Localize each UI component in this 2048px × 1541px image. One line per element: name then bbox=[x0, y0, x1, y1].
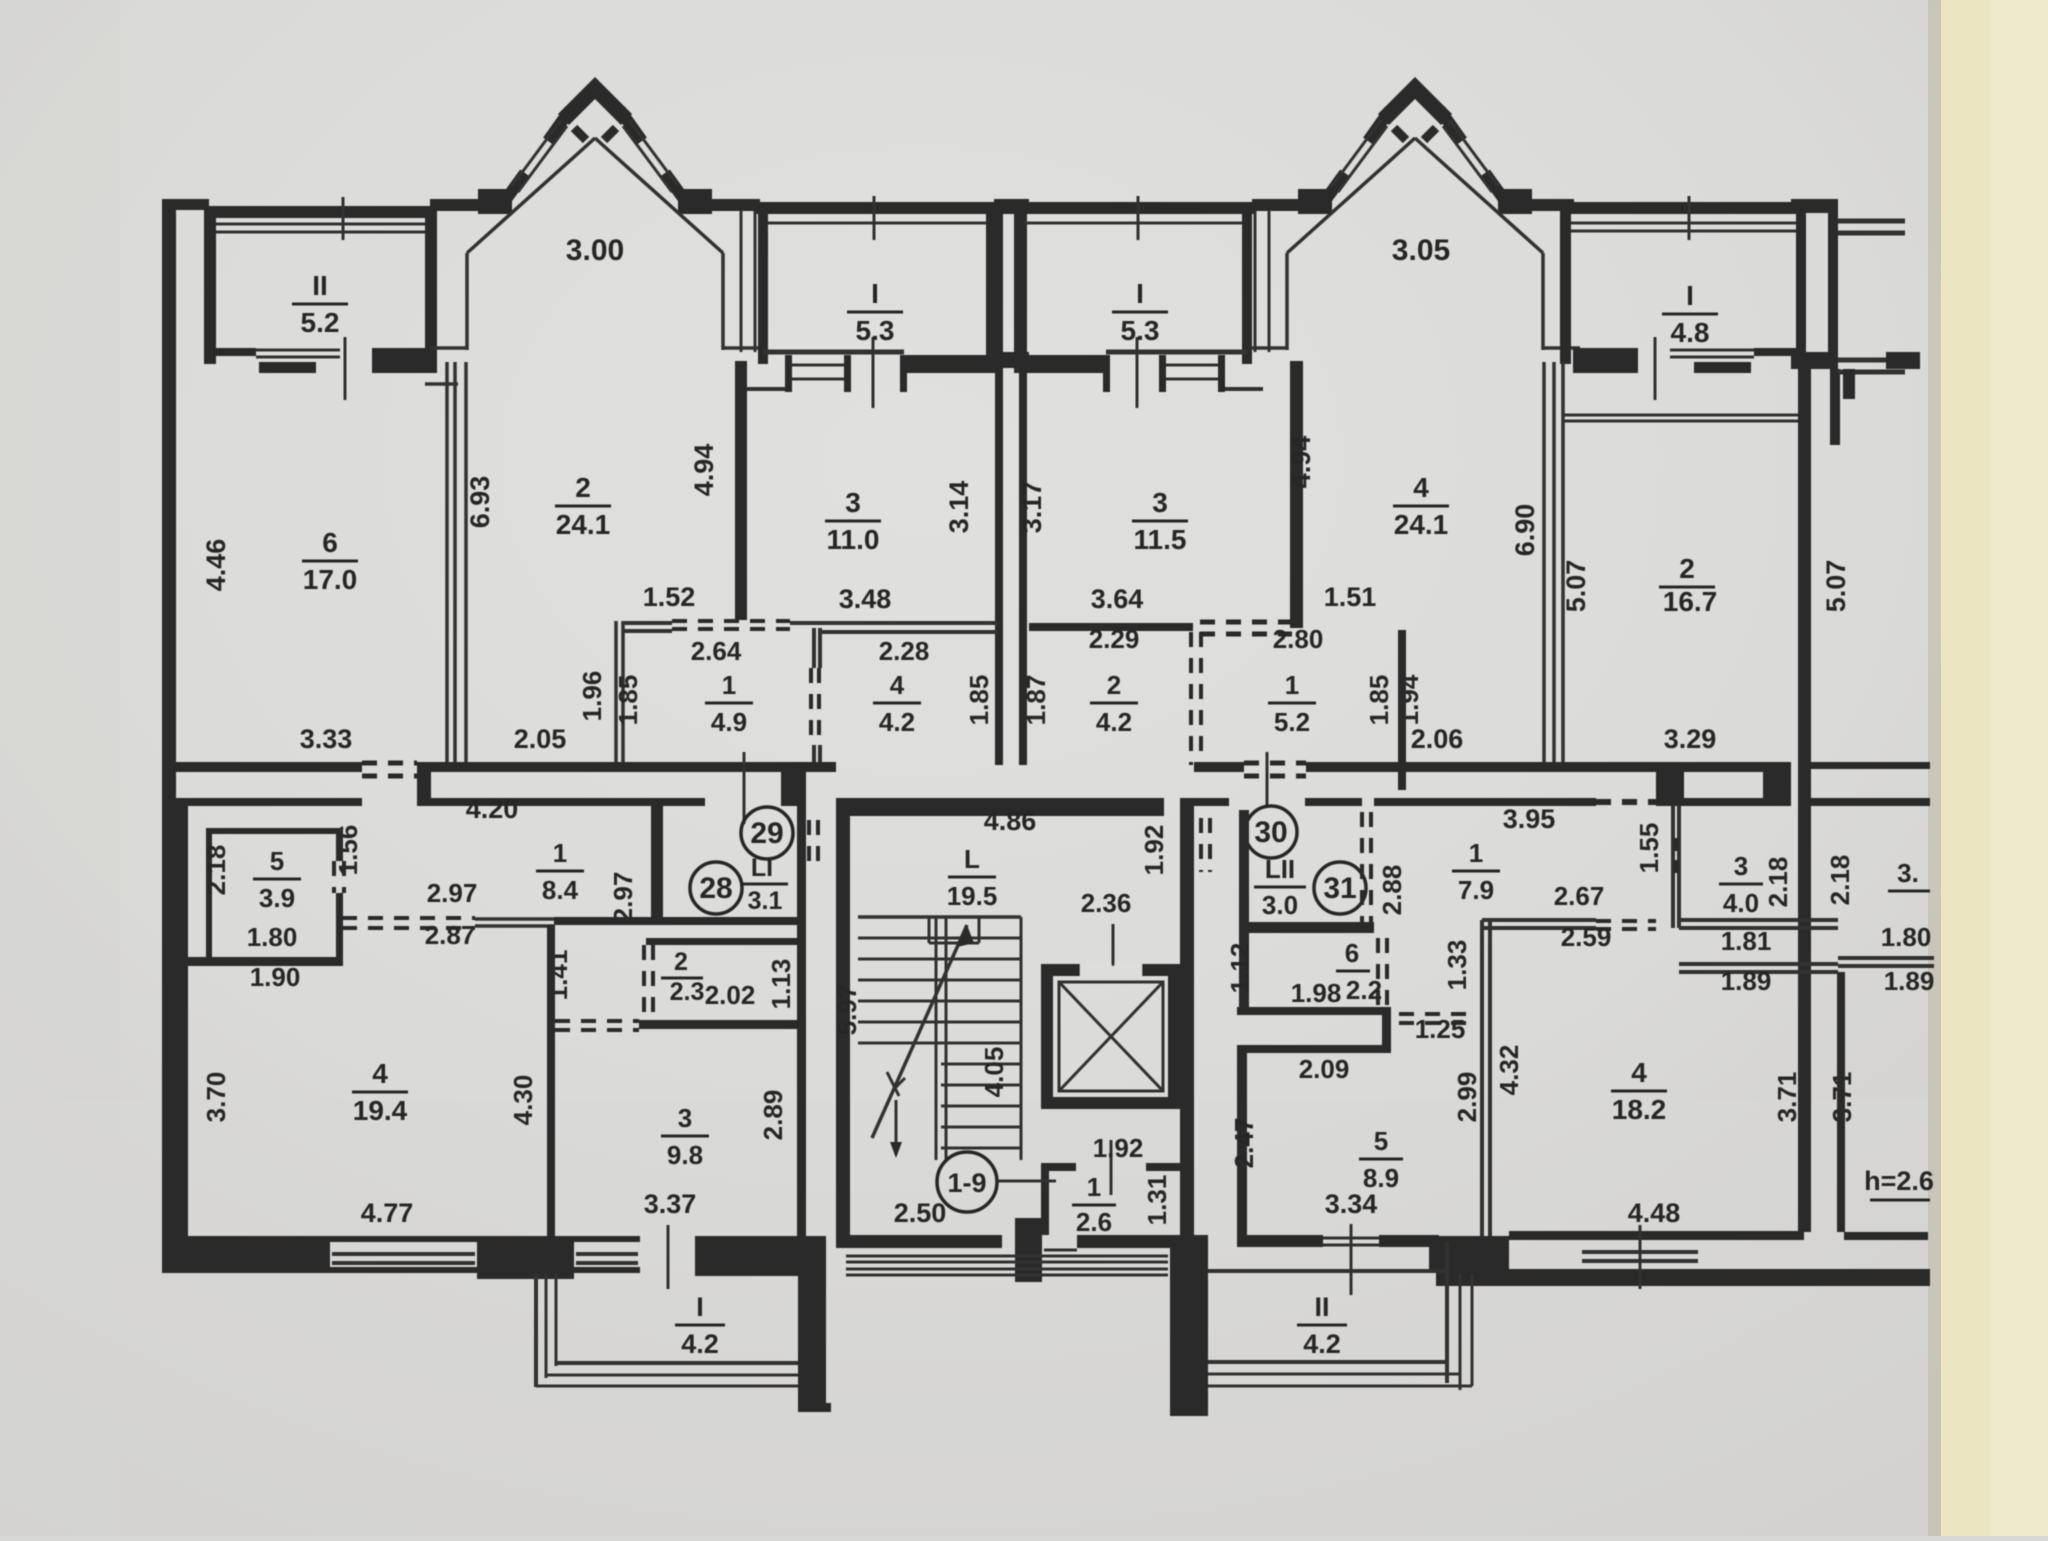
svg-text:h=2.6: h=2.6 bbox=[1864, 1166, 1934, 1196]
svg-text:4.32: 4.32 bbox=[1494, 1045, 1524, 1096]
svg-text:6: 6 bbox=[322, 527, 338, 558]
svg-text:1-9: 1-9 bbox=[947, 1168, 986, 1198]
svg-text:4.94: 4.94 bbox=[689, 444, 719, 497]
svg-text:3.0: 3.0 bbox=[1262, 890, 1298, 920]
svg-text:1: 1 bbox=[1087, 1172, 1101, 1202]
svg-text:7.9: 7.9 bbox=[1458, 875, 1494, 905]
svg-text:2.18: 2.18 bbox=[1825, 855, 1855, 906]
svg-text:5.2: 5.2 bbox=[1274, 707, 1310, 737]
svg-text:2.02: 2.02 bbox=[705, 980, 756, 1010]
svg-text:1: 1 bbox=[1285, 670, 1299, 700]
svg-text:3.05: 3.05 bbox=[1392, 234, 1450, 267]
svg-text:1.89: 1.89 bbox=[1884, 966, 1935, 996]
svg-text:4.46: 4.46 bbox=[201, 539, 231, 592]
svg-text:1.90: 1.90 bbox=[250, 962, 301, 992]
svg-text:4.48: 4.48 bbox=[1628, 1198, 1681, 1228]
svg-text:3: 3 bbox=[678, 1103, 692, 1133]
svg-text:1.80: 1.80 bbox=[1881, 922, 1932, 952]
svg-text:4.2: 4.2 bbox=[681, 1329, 719, 1359]
svg-text:2.18: 2.18 bbox=[201, 845, 231, 896]
svg-text:3: 3 bbox=[1734, 851, 1748, 881]
svg-text:1.81: 1.81 bbox=[1721, 926, 1772, 956]
svg-text:2: 2 bbox=[1107, 670, 1121, 700]
svg-text:1.55: 1.55 bbox=[1634, 823, 1664, 874]
svg-text:4: 4 bbox=[1413, 472, 1429, 503]
svg-text:1.80: 1.80 bbox=[247, 922, 298, 952]
svg-text:17.0: 17.0 bbox=[303, 564, 358, 595]
svg-text:24.1: 24.1 bbox=[556, 509, 611, 540]
svg-text:1.85: 1.85 bbox=[1364, 675, 1394, 726]
svg-text:2.2: 2.2 bbox=[1346, 975, 1382, 1005]
svg-text:3.70: 3.70 bbox=[201, 1072, 231, 1123]
svg-text:1.25: 1.25 bbox=[1415, 1014, 1466, 1044]
svg-text:11.5: 11.5 bbox=[1134, 524, 1187, 555]
svg-text:1.31: 1.31 bbox=[1142, 1175, 1172, 1226]
svg-text:1.98: 1.98 bbox=[1291, 978, 1342, 1008]
svg-text:1.33: 1.33 bbox=[1442, 940, 1472, 991]
svg-text:6.93: 6.93 bbox=[465, 476, 495, 529]
svg-text:5.2: 5.2 bbox=[301, 307, 340, 338]
svg-text:2.29: 2.29 bbox=[1089, 624, 1140, 654]
svg-text:1.96: 1.96 bbox=[577, 671, 607, 722]
svg-text:2.99: 2.99 bbox=[1452, 1072, 1482, 1123]
svg-text:5: 5 bbox=[270, 846, 284, 876]
svg-text:3.64: 3.64 bbox=[1091, 584, 1144, 614]
svg-text:4.8: 4.8 bbox=[1671, 317, 1710, 348]
svg-text:3.95: 3.95 bbox=[1503, 804, 1556, 834]
svg-text:1: 1 bbox=[553, 838, 567, 868]
svg-text:2.89: 2.89 bbox=[758, 1090, 788, 1141]
svg-text:4.94: 4.94 bbox=[1286, 436, 1316, 489]
svg-text:2.64: 2.64 bbox=[691, 636, 742, 666]
svg-text:31: 31 bbox=[1323, 872, 1356, 905]
svg-text:6.90: 6.90 bbox=[1510, 504, 1540, 557]
svg-text:4.0: 4.0 bbox=[1723, 888, 1759, 918]
svg-text:3.34: 3.34 bbox=[1325, 1189, 1378, 1219]
svg-text:28: 28 bbox=[699, 872, 732, 905]
svg-text:1.12: 1.12 bbox=[1225, 943, 1255, 994]
svg-text:3.: 3. bbox=[1897, 858, 1919, 888]
svg-text:5.3: 5.3 bbox=[856, 315, 895, 346]
svg-text:4: 4 bbox=[1631, 1057, 1647, 1088]
svg-text:2: 2 bbox=[674, 948, 688, 976]
svg-text:1.89: 1.89 bbox=[1721, 966, 1772, 996]
svg-text:1: 1 bbox=[722, 670, 736, 700]
svg-text:4.77: 4.77 bbox=[361, 1198, 414, 1228]
svg-text:2.28: 2.28 bbox=[879, 636, 930, 666]
svg-text:16.7: 16.7 bbox=[1663, 586, 1718, 617]
svg-text:3.14: 3.14 bbox=[944, 481, 974, 534]
svg-text:I: I bbox=[696, 1292, 704, 1322]
svg-text:3.17: 3.17 bbox=[1017, 481, 1047, 534]
svg-text:6: 6 bbox=[1345, 938, 1359, 968]
svg-text:4.20: 4.20 bbox=[466, 794, 519, 824]
svg-text:4.30: 4.30 bbox=[508, 1075, 538, 1126]
svg-text:II: II bbox=[312, 270, 328, 301]
svg-text:5: 5 bbox=[1374, 1126, 1388, 1156]
svg-text:3.1: 3.1 bbox=[748, 887, 783, 915]
svg-text:I: I bbox=[1136, 278, 1144, 309]
svg-text:8.4: 8.4 bbox=[542, 875, 579, 905]
svg-text:2: 2 bbox=[575, 472, 591, 503]
svg-text:2.05: 2.05 bbox=[514, 724, 567, 754]
svg-text:4.05: 4.05 bbox=[979, 1047, 1009, 1098]
svg-text:1.85: 1.85 bbox=[964, 675, 994, 726]
svg-text:1.51: 1.51 bbox=[1324, 582, 1377, 612]
svg-text:3.9: 3.9 bbox=[259, 883, 295, 913]
svg-text:3.00: 3.00 bbox=[566, 234, 624, 267]
svg-text:4: 4 bbox=[372, 1058, 388, 1089]
svg-text:2.59: 2.59 bbox=[1561, 922, 1612, 952]
svg-text:2.06: 2.06 bbox=[1411, 724, 1464, 754]
svg-text:4.9: 4.9 bbox=[711, 707, 747, 737]
svg-text:3.48: 3.48 bbox=[839, 584, 892, 614]
svg-text:2.50: 2.50 bbox=[894, 1198, 947, 1228]
svg-text:29: 29 bbox=[750, 817, 783, 850]
svg-text:3.33: 3.33 bbox=[300, 724, 353, 754]
svg-text:3.29: 3.29 bbox=[1664, 724, 1717, 754]
svg-text:2.18: 2.18 bbox=[1763, 857, 1793, 908]
svg-text:LII: LII bbox=[1265, 854, 1295, 884]
svg-text:9.8: 9.8 bbox=[667, 1140, 703, 1170]
svg-text:18.2: 18.2 bbox=[1612, 1094, 1667, 1125]
svg-text:2.47: 2.47 bbox=[1229, 1118, 1259, 1169]
svg-text:I: I bbox=[871, 278, 879, 309]
svg-text:1.92: 1.92 bbox=[1139, 825, 1169, 876]
svg-text:5.07: 5.07 bbox=[1561, 560, 1591, 613]
svg-text:4.2: 4.2 bbox=[1303, 1329, 1341, 1359]
svg-text:11.0: 11.0 bbox=[827, 524, 880, 555]
svg-text:2.6: 2.6 bbox=[1076, 1207, 1112, 1237]
svg-text:4.2: 4.2 bbox=[879, 707, 915, 737]
svg-text:3.71: 3.71 bbox=[1772, 1072, 1802, 1123]
svg-text:5.97: 5.97 bbox=[832, 985, 862, 1036]
svg-text:II: II bbox=[1314, 1292, 1329, 1322]
svg-text:19.4: 19.4 bbox=[353, 1095, 408, 1126]
svg-text:30: 30 bbox=[1254, 816, 1287, 849]
svg-text:5.07: 5.07 bbox=[1821, 560, 1851, 613]
svg-text:19.5: 19.5 bbox=[947, 881, 998, 911]
svg-text:2.88: 2.88 bbox=[1377, 865, 1407, 916]
svg-text:1.52: 1.52 bbox=[643, 582, 696, 612]
svg-text:I: I bbox=[1686, 280, 1694, 311]
svg-text:1.92: 1.92 bbox=[1093, 1133, 1144, 1163]
svg-text:3.37: 3.37 bbox=[644, 1189, 697, 1219]
svg-text:2.36: 2.36 bbox=[1081, 888, 1132, 918]
svg-text:1: 1 bbox=[1469, 838, 1483, 868]
svg-text:1.85: 1.85 bbox=[613, 675, 643, 726]
svg-text:2.09: 2.09 bbox=[1299, 1054, 1350, 1084]
svg-text:4.2: 4.2 bbox=[1096, 707, 1132, 737]
svg-text:2: 2 bbox=[1679, 553, 1695, 584]
svg-text:24.1: 24.1 bbox=[1394, 509, 1449, 540]
svg-text:3: 3 bbox=[1152, 487, 1168, 518]
svg-text:2.97: 2.97 bbox=[427, 878, 478, 908]
svg-text:4: 4 bbox=[890, 670, 905, 700]
svg-text:L: L bbox=[964, 844, 980, 874]
svg-text:2.87: 2.87 bbox=[425, 920, 476, 950]
svg-text:1.13: 1.13 bbox=[766, 959, 796, 1010]
svg-text:3: 3 bbox=[845, 487, 861, 518]
svg-text:4.86: 4.86 bbox=[984, 806, 1037, 836]
svg-text:2.3: 2.3 bbox=[670, 978, 705, 1006]
svg-text:5.3: 5.3 bbox=[1121, 315, 1160, 346]
svg-text:2.67: 2.67 bbox=[1554, 881, 1605, 911]
svg-text:2.80: 2.80 bbox=[1273, 624, 1324, 654]
svg-text:1.87: 1.87 bbox=[1021, 675, 1051, 726]
svg-text:2.97: 2.97 bbox=[608, 872, 638, 923]
